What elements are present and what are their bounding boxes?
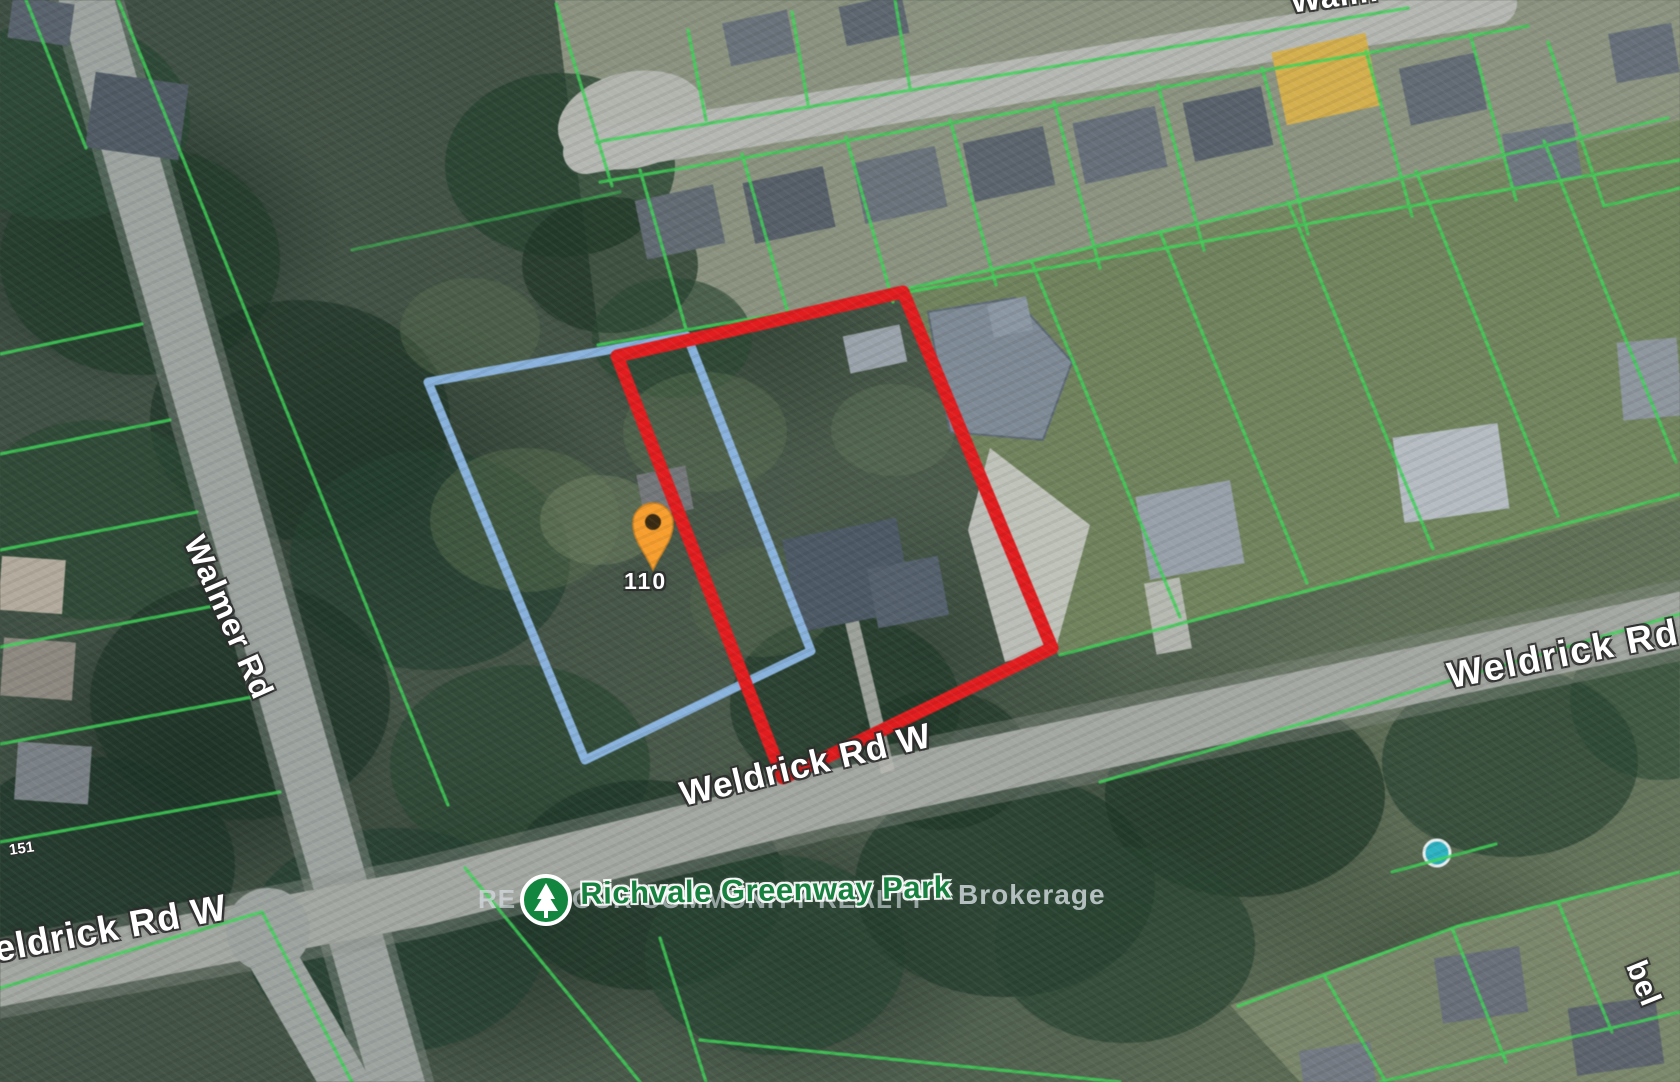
tree-blob [995,847,1255,1043]
scrub-patch [831,384,955,476]
pin-address-label: 110 [624,568,667,595]
house-roof [1434,946,1528,1023]
park-icon [518,872,574,933]
map-canvas [0,0,1680,1082]
road-intersection [226,888,310,972]
house-roof [0,556,66,614]
parcel-line [700,1040,1120,1082]
house-roof [1393,423,1510,523]
location-pin[interactable] [633,503,673,570]
house-roof [1135,480,1244,579]
house-roof [1617,338,1680,421]
pin-dot [645,514,661,530]
house-roof [0,638,76,701]
park-name-label: Richvale Greenway Park [580,870,952,912]
watermark-suffix: Brokerage [958,879,1106,911]
pin-body [633,503,673,570]
house-roof [14,741,92,804]
satellite-map[interactable]: RE OUR COMMUNITY REALTY Brokerage Richva… [0,0,1680,1082]
watermark-prefix: RE [478,884,516,915]
parcel-number-label: 151 [8,839,35,859]
tree-icon [518,872,574,928]
house-roof [85,72,189,160]
house-roof [843,324,908,373]
